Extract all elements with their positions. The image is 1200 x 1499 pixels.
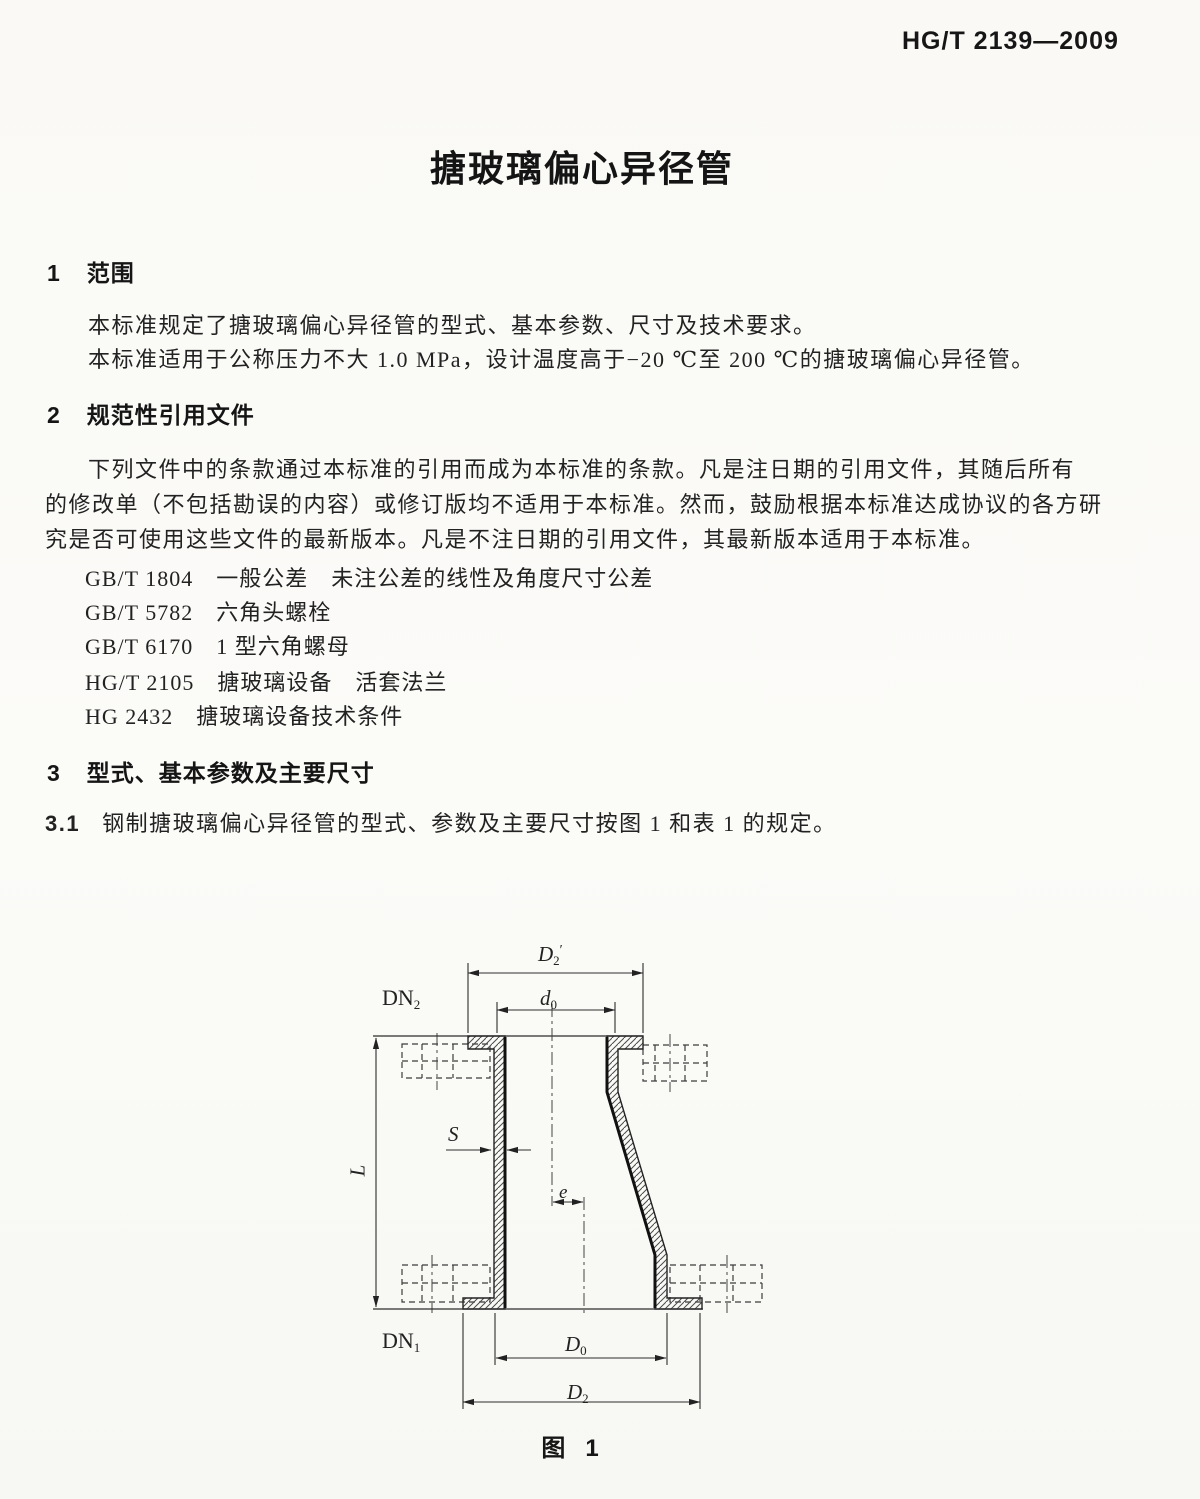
document-page: HG/T 2139—2009 搪玻璃偏心异径管 1范围 本标准规定了搪玻璃偏心异… xyxy=(0,0,1200,1499)
dim-label-L: L xyxy=(347,1165,368,1177)
section-number: 1 xyxy=(47,260,61,287)
body-line: 究是否可使用这些文件的最新版本。凡是不注日期的引用文件，其最新版本适用于本标准。 xyxy=(45,522,985,554)
figure-caption: 图1 xyxy=(340,1428,800,1463)
dim-label-S: S xyxy=(448,1124,459,1145)
dim-label-dn2: DN2 xyxy=(382,987,420,1011)
section-1-heading: 1范围 xyxy=(47,254,135,288)
section-2-heading: 2规范性引用文件 xyxy=(47,396,255,430)
dim-label-D0-bottom: D0 xyxy=(565,1334,587,1357)
body-line: 的修改单（不包括勘误的内容）或修订版均不适用于本标准。然而，鼓励根据本标准达成协… xyxy=(45,487,1103,519)
dim-label-e: e xyxy=(559,1183,567,1202)
standard-code: HG/T 2139—2009 xyxy=(902,27,1119,56)
section-3-heading: 3型式、基本参数及主要尺寸 xyxy=(47,754,375,788)
dim-label-d2-prime: D2′ xyxy=(538,944,563,967)
body-line: 本标准规定了搪玻璃偏心异径管的型式、基本参数、尺寸及技术要求。 xyxy=(88,308,817,340)
reducer-left-wall xyxy=(463,1036,505,1309)
section-title: 范围 xyxy=(87,260,135,286)
reference-item: HG 2432 搪玻璃设备技术条件 xyxy=(85,699,403,731)
dim-label-D2-bottom: D2 xyxy=(567,1382,589,1405)
dim-label-dn1: DN1 xyxy=(382,1330,420,1354)
page-title: 搪玻璃偏心异径管 xyxy=(430,140,734,192)
body-line: 下列文件中的条款通过本标准的引用而成为本标准的条款。凡是注日期的引用文件，其随后… xyxy=(88,452,1075,484)
body-line: 本标准适用于公称压力不大 1.0 MPa，设计温度高于−20 ℃至 200 ℃的… xyxy=(88,342,1035,374)
reference-item: GB/T 6170 1 型六角螺母 xyxy=(85,629,350,661)
clause-text: 钢制搪玻璃偏心异径管的型式、参数及主要尺寸按图 1 和表 1 的规定。 xyxy=(102,811,837,836)
dim-label-d0-top: d0 xyxy=(540,988,557,1011)
clause-3-1: 3.1钢制搪玻璃偏心异径管的型式、参数及主要尺寸按图 1 和表 1 的规定。 xyxy=(45,806,837,838)
reference-item: GB/T 1804 一般公差 未注公差的线性及角度尺寸公差 xyxy=(85,561,653,593)
reference-item: HG/T 2105 搪玻璃设备 活套法兰 xyxy=(85,665,447,697)
clause-number: 3.1 xyxy=(45,811,80,836)
section-number: 3 xyxy=(47,760,61,787)
section-title: 型式、基本参数及主要尺寸 xyxy=(87,760,375,786)
section-title: 规范性引用文件 xyxy=(87,402,255,428)
section-number: 2 xyxy=(47,402,61,429)
bolt-assembly-top-right xyxy=(643,1034,707,1092)
reference-item: GB/T 5782 六角头螺栓 xyxy=(85,595,331,627)
